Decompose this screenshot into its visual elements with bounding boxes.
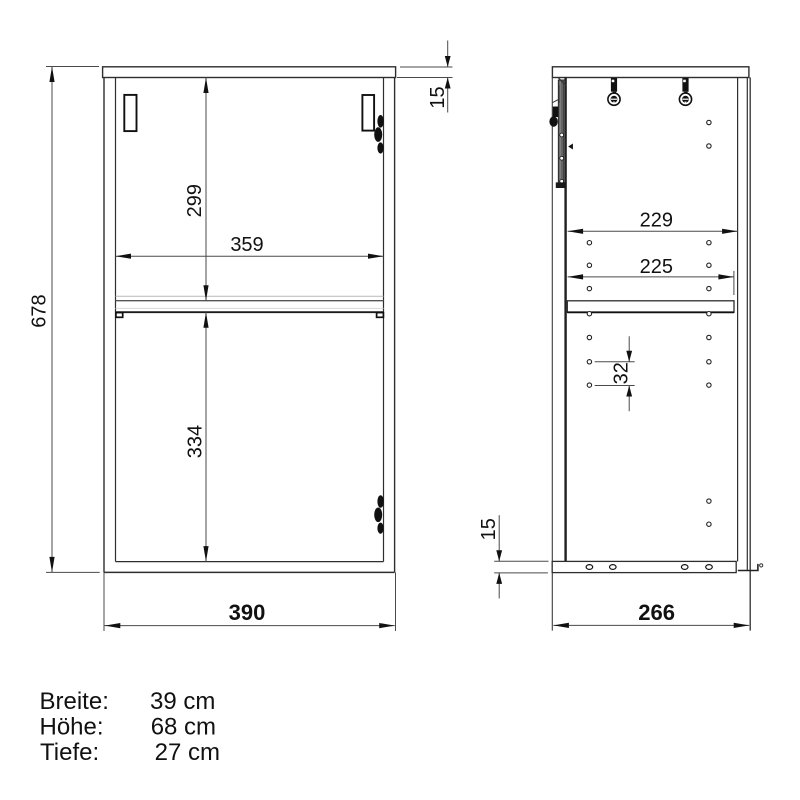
svg-text:299: 299 <box>184 184 206 217</box>
svg-text:266: 266 <box>638 600 675 625</box>
svg-text:229: 229 <box>640 210 673 232</box>
svg-text:Tiefe:: Tiefe: <box>40 739 99 766</box>
svg-text:359: 359 <box>230 234 263 256</box>
svg-text:390: 390 <box>229 600 266 625</box>
svg-text:Breite:: Breite: <box>40 688 109 715</box>
svg-text:15: 15 <box>478 518 500 540</box>
svg-text:334: 334 <box>185 425 207 458</box>
svg-text:68 cm: 68 cm <box>151 714 216 741</box>
svg-text:15: 15 <box>427 86 449 108</box>
svg-text:39 cm: 39 cm <box>150 688 215 715</box>
svg-text:225: 225 <box>640 256 673 278</box>
svg-text:678: 678 <box>29 294 51 327</box>
svg-text:32: 32 <box>611 362 633 384</box>
svg-text:27 cm: 27 cm <box>155 739 220 766</box>
svg-text:Höhe:: Höhe: <box>40 714 104 741</box>
